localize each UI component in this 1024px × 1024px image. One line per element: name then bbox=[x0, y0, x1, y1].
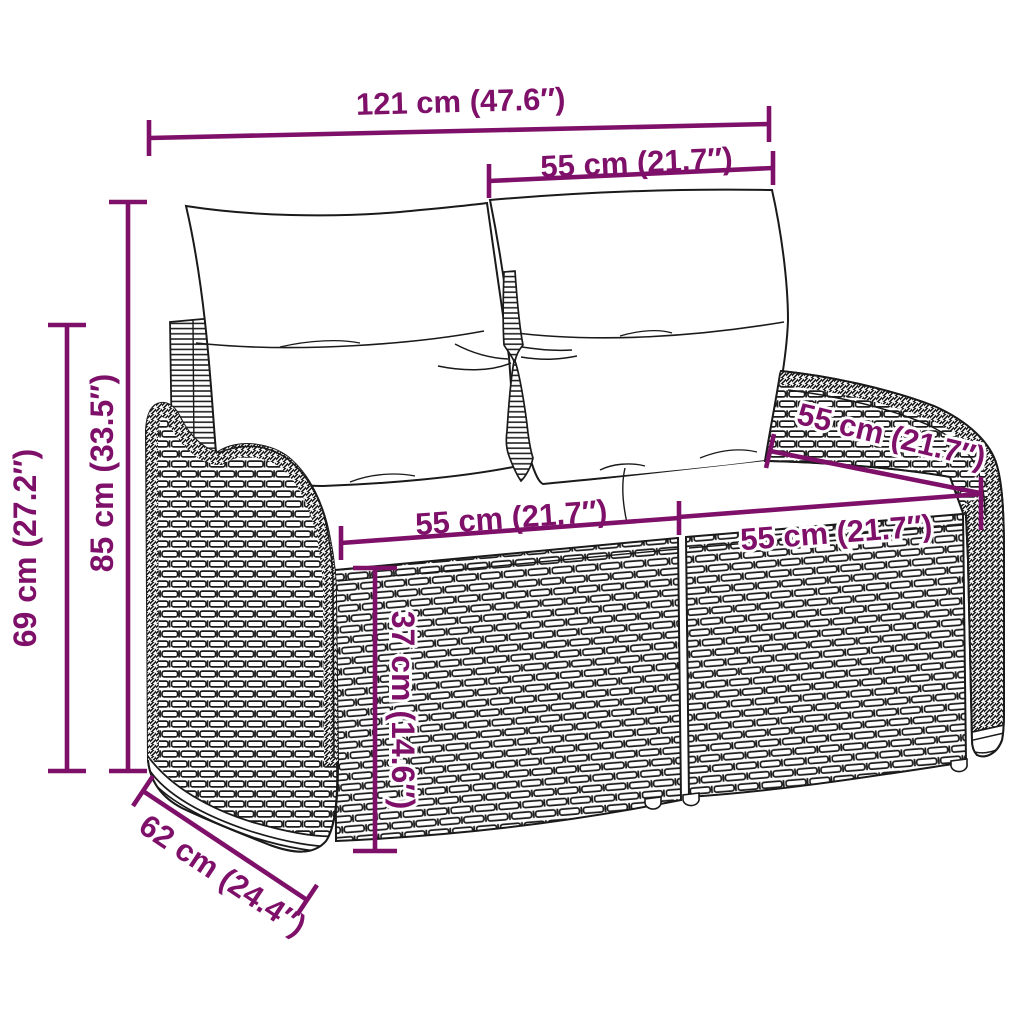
svg-text:69 cm (27.2″): 69 cm (27.2″) bbox=[7, 449, 43, 648]
svg-text:37 cm (14.6″): 37 cm (14.6″) bbox=[385, 611, 421, 810]
svg-text:85 cm (33.5″): 85 cm (33.5″) bbox=[84, 374, 120, 573]
svg-text:121 cm (47.6″): 121 cm (47.6″) bbox=[355, 81, 565, 122]
